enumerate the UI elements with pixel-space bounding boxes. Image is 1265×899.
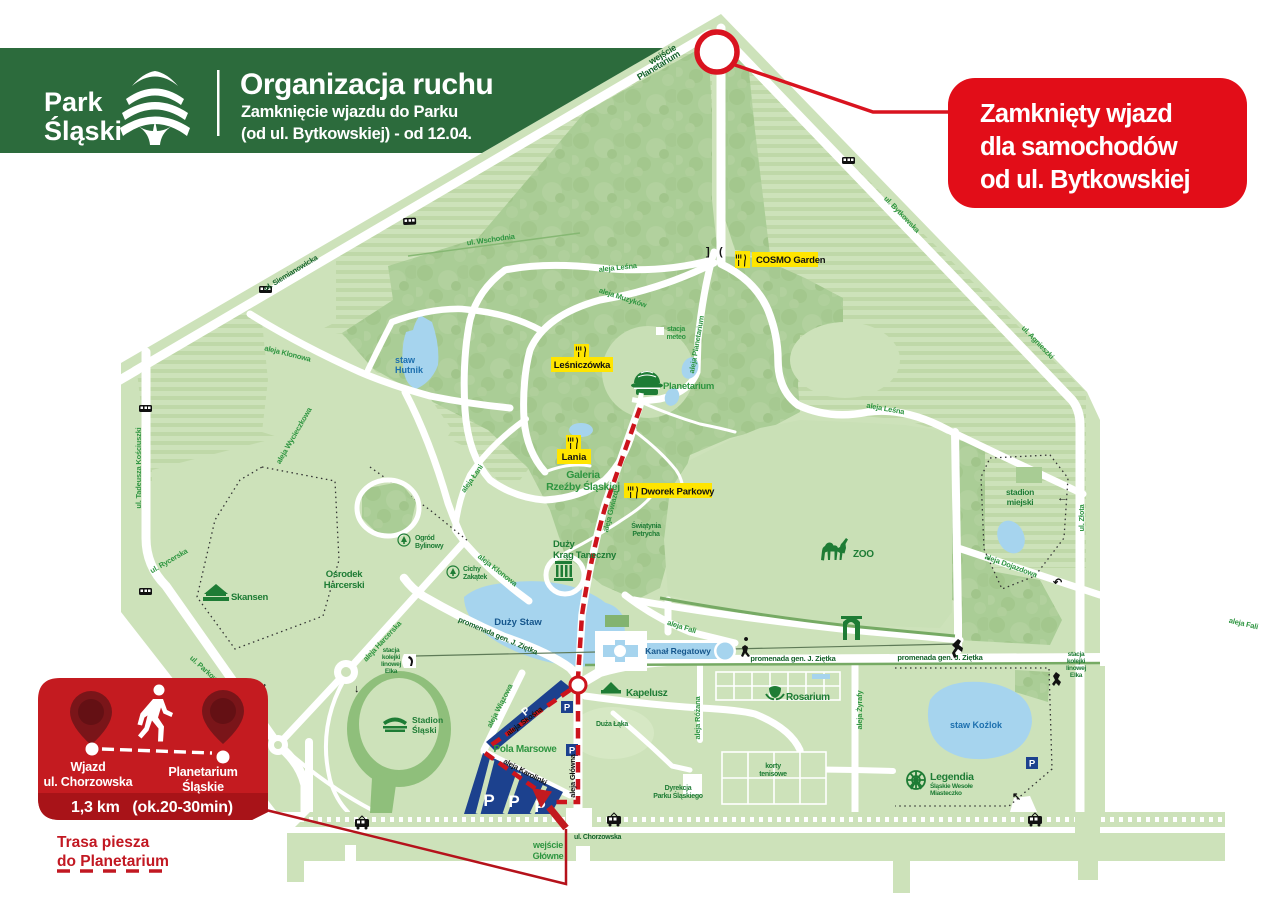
svg-text:aleja Żyrafy: aleja Żyrafy bbox=[855, 690, 864, 730]
svg-text:Ogród: Ogród bbox=[415, 535, 435, 542]
svg-text:kolejki: kolejki bbox=[1067, 658, 1086, 665]
svg-text:Dworek Parkowy: Dworek Parkowy bbox=[641, 487, 715, 498]
svg-text:Hutnik: Hutnik bbox=[395, 365, 424, 375]
svg-text:do Planetarium: do Planetarium bbox=[57, 853, 169, 870]
svg-text:Śląskie: Śląskie bbox=[182, 779, 224, 794]
svg-text:Główne: Główne bbox=[533, 851, 564, 861]
svg-text:tenisowe: tenisowe bbox=[759, 771, 787, 778]
svg-text:Stadion: Stadion bbox=[412, 715, 443, 725]
svg-text:Miasteczko: Miasteczko bbox=[930, 790, 962, 797]
svg-text:linowej: linowej bbox=[1066, 665, 1086, 672]
svg-text:ul. Chorzowska: ul. Chorzowska bbox=[574, 834, 622, 841]
svg-text:kolejki: kolejki bbox=[382, 654, 401, 661]
svg-text:Zamknięcie wjazdu do Parku: Zamknięcie wjazdu do Parku bbox=[241, 103, 458, 121]
svg-text:Park: Park bbox=[44, 87, 104, 117]
svg-text:Kanał Regatowy: Kanał Regatowy bbox=[645, 646, 711, 656]
svg-text:Pola Marsowe: Pola Marsowe bbox=[493, 744, 557, 755]
svg-text:(: ( bbox=[719, 246, 723, 258]
svg-text:]: ] bbox=[706, 246, 710, 258]
svg-text:promenada gen. J. Ziętka: promenada gen. J. Ziętka bbox=[897, 653, 983, 662]
svg-text:ul. Chorzowska: ul. Chorzowska bbox=[44, 775, 134, 789]
svg-text:Leśniczówka: Leśniczówka bbox=[554, 360, 611, 371]
svg-text:ul. Złota: ul. Złota bbox=[1077, 504, 1086, 532]
svg-text:Krąg Taneczny: Krąg Taneczny bbox=[553, 550, 617, 561]
svg-text:od ul. Bytkowskiej: od ul. Bytkowskiej bbox=[980, 166, 1190, 194]
svg-text:staw: staw bbox=[395, 355, 416, 365]
svg-text:1,3 km (ok.20-30min): 1,3 km (ok.20-30min) bbox=[71, 799, 233, 816]
svg-text:Planetarium: Planetarium bbox=[168, 765, 237, 779]
svg-text:Kapelusz: Kapelusz bbox=[626, 688, 668, 699]
svg-text:aleja Główna: aleja Główna bbox=[568, 753, 577, 797]
svg-text:stacja: stacja bbox=[383, 647, 400, 654]
svg-text:Galeria: Galeria bbox=[566, 469, 600, 481]
svg-text:(od ul. Bytkowskiej) - od 12.0: (od ul. Bytkowskiej) - od 12.04. bbox=[241, 125, 472, 143]
svg-text:Śląski: Śląski bbox=[44, 115, 122, 146]
svg-text:Skansen: Skansen bbox=[231, 592, 268, 603]
svg-text:Harcerski: Harcerski bbox=[324, 580, 365, 591]
svg-text:Dyrekcja: Dyrekcja bbox=[665, 785, 692, 792]
svg-text:promenada gen. J. Ziętka: promenada gen. J. Ziętka bbox=[750, 654, 836, 663]
svg-text:meteo: meteo bbox=[666, 334, 685, 341]
svg-text:Petrycha: Petrycha bbox=[632, 531, 660, 538]
svg-text:P: P bbox=[508, 792, 519, 811]
svg-text:stadion: stadion bbox=[1006, 487, 1034, 497]
svg-text:miejski: miejski bbox=[1007, 497, 1034, 507]
svg-text:stacja: stacja bbox=[667, 326, 685, 333]
svg-text:Rzeźby Śląskiej: Rzeźby Śląskiej bbox=[546, 480, 620, 493]
svg-text:Ośrodek: Ośrodek bbox=[326, 569, 363, 580]
svg-text:Organizacja ruchu: Organizacja ruchu bbox=[240, 68, 493, 101]
svg-text:ZOO: ZOO bbox=[853, 549, 874, 560]
svg-text:Elka: Elka bbox=[385, 668, 398, 675]
svg-text:Elka: Elka bbox=[1070, 672, 1083, 679]
svg-text:↖: ↖ bbox=[1012, 791, 1021, 803]
svg-text:dla samochodów: dla samochodów bbox=[980, 133, 1178, 161]
svg-text:linowej: linowej bbox=[381, 661, 401, 668]
svg-text:Cichy: Cichy bbox=[463, 566, 481, 573]
svg-text:Duży: Duży bbox=[553, 539, 576, 550]
svg-text:Lania: Lania bbox=[562, 452, 588, 463]
svg-text:staw Koźlok: staw Koźlok bbox=[950, 720, 1003, 730]
svg-text:wejście: wejście bbox=[532, 840, 563, 850]
svg-text:korty: korty bbox=[765, 763, 781, 770]
svg-text:Legendia: Legendia bbox=[930, 771, 974, 783]
svg-text:↓: ↓ bbox=[354, 683, 360, 695]
svg-text:↶: ↶ bbox=[1052, 577, 1063, 589]
svg-text:Zakątek: Zakątek bbox=[463, 574, 487, 581]
svg-text:ul. Tadeusza Kościuszki: ul. Tadeusza Kościuszki bbox=[134, 427, 143, 508]
svg-text:Śląski: Śląski bbox=[412, 724, 437, 735]
svg-text:Rosarium: Rosarium bbox=[786, 692, 830, 703]
svg-text:Duży Staw: Duży Staw bbox=[494, 617, 542, 628]
svg-text:Świątynia: Świątynia bbox=[631, 521, 661, 530]
svg-text:P: P bbox=[483, 791, 494, 810]
svg-text:Bylinowy: Bylinowy bbox=[415, 543, 444, 550]
svg-text:COSMO Garden: COSMO Garden bbox=[756, 255, 826, 266]
svg-text:P: P bbox=[564, 703, 571, 714]
svg-text:Parku Śląskiego: Parku Śląskiego bbox=[653, 791, 703, 800]
svg-text:Śląskie Wesołe: Śląskie Wesołe bbox=[930, 781, 973, 790]
svg-text:Zamknięty wjazd: Zamknięty wjazd bbox=[980, 100, 1172, 128]
svg-text:Planetarium: Planetarium bbox=[663, 381, 714, 392]
svg-text:stacja: stacja bbox=[1068, 651, 1085, 658]
svg-text:P: P bbox=[1029, 759, 1036, 770]
svg-text:aleja Różana: aleja Różana bbox=[693, 695, 702, 739]
svg-text:Trasa piesza: Trasa piesza bbox=[57, 834, 150, 851]
svg-text:Duża Łąka: Duża Łąka bbox=[596, 721, 628, 728]
svg-text:←: ← bbox=[1057, 492, 1068, 504]
svg-text:Wjazd: Wjazd bbox=[70, 760, 105, 774]
